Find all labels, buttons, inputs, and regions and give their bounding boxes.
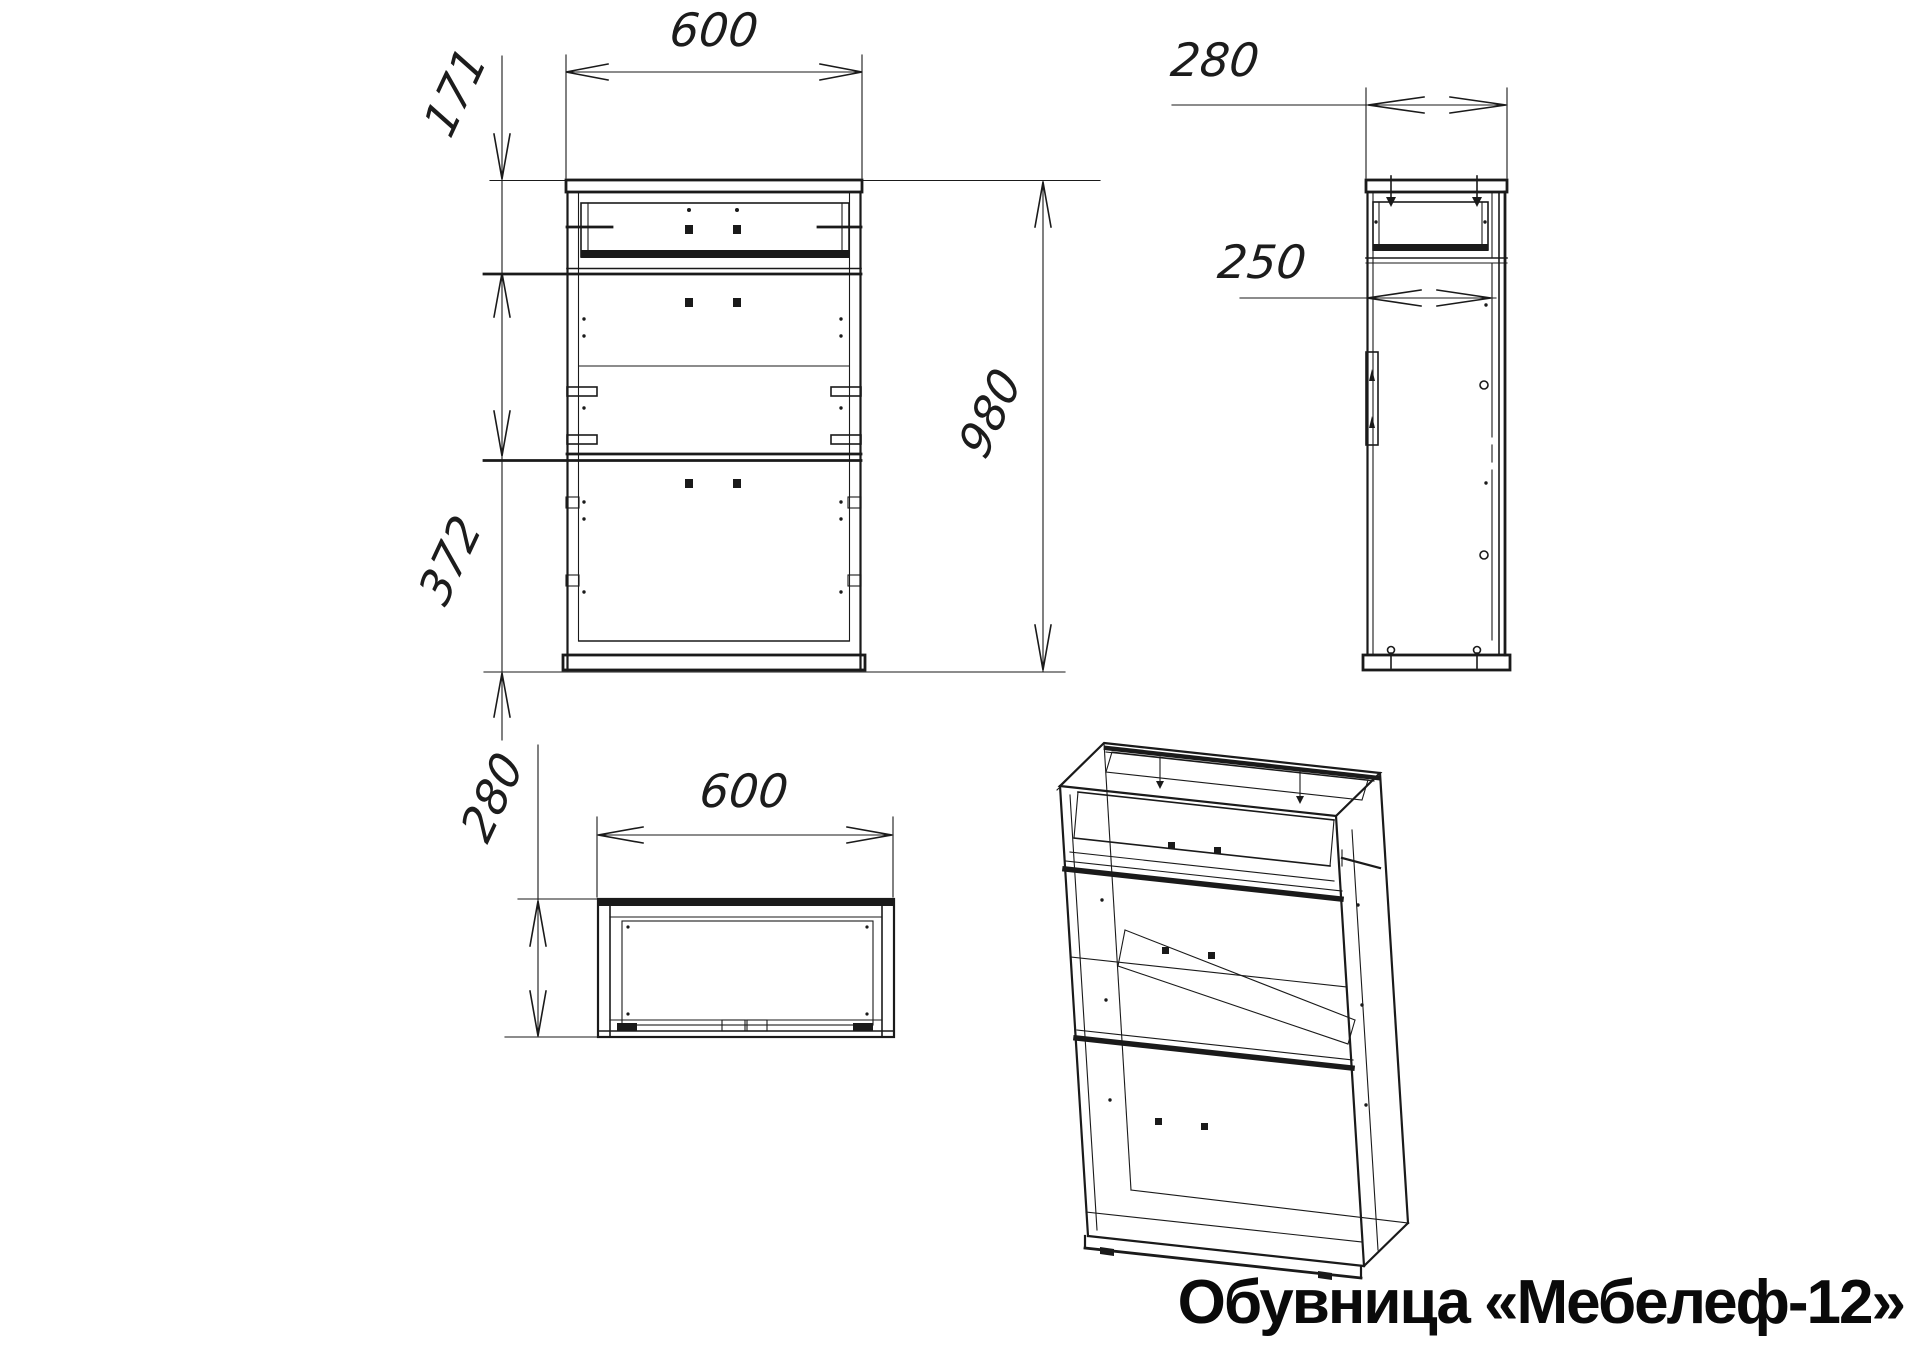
drawing-canvas xyxy=(0,0,1920,1356)
technical-drawing-page: 600 171 372 980 280 250 600 280 Обувница… xyxy=(0,0,1920,1356)
product-title: Обувница «Мебелеф-12» xyxy=(1178,1272,1904,1334)
side-view xyxy=(1363,176,1510,670)
side-inner-depth-label: 250 xyxy=(1216,239,1309,285)
iso-view xyxy=(1057,743,1408,1280)
front-view xyxy=(484,180,865,670)
side-depth-label: 280 xyxy=(1169,37,1262,83)
front-width-label: 600 xyxy=(668,7,761,53)
top-view xyxy=(598,899,894,1037)
top-width-label: 600 xyxy=(698,768,791,814)
top-view-dimensions xyxy=(505,745,893,1037)
